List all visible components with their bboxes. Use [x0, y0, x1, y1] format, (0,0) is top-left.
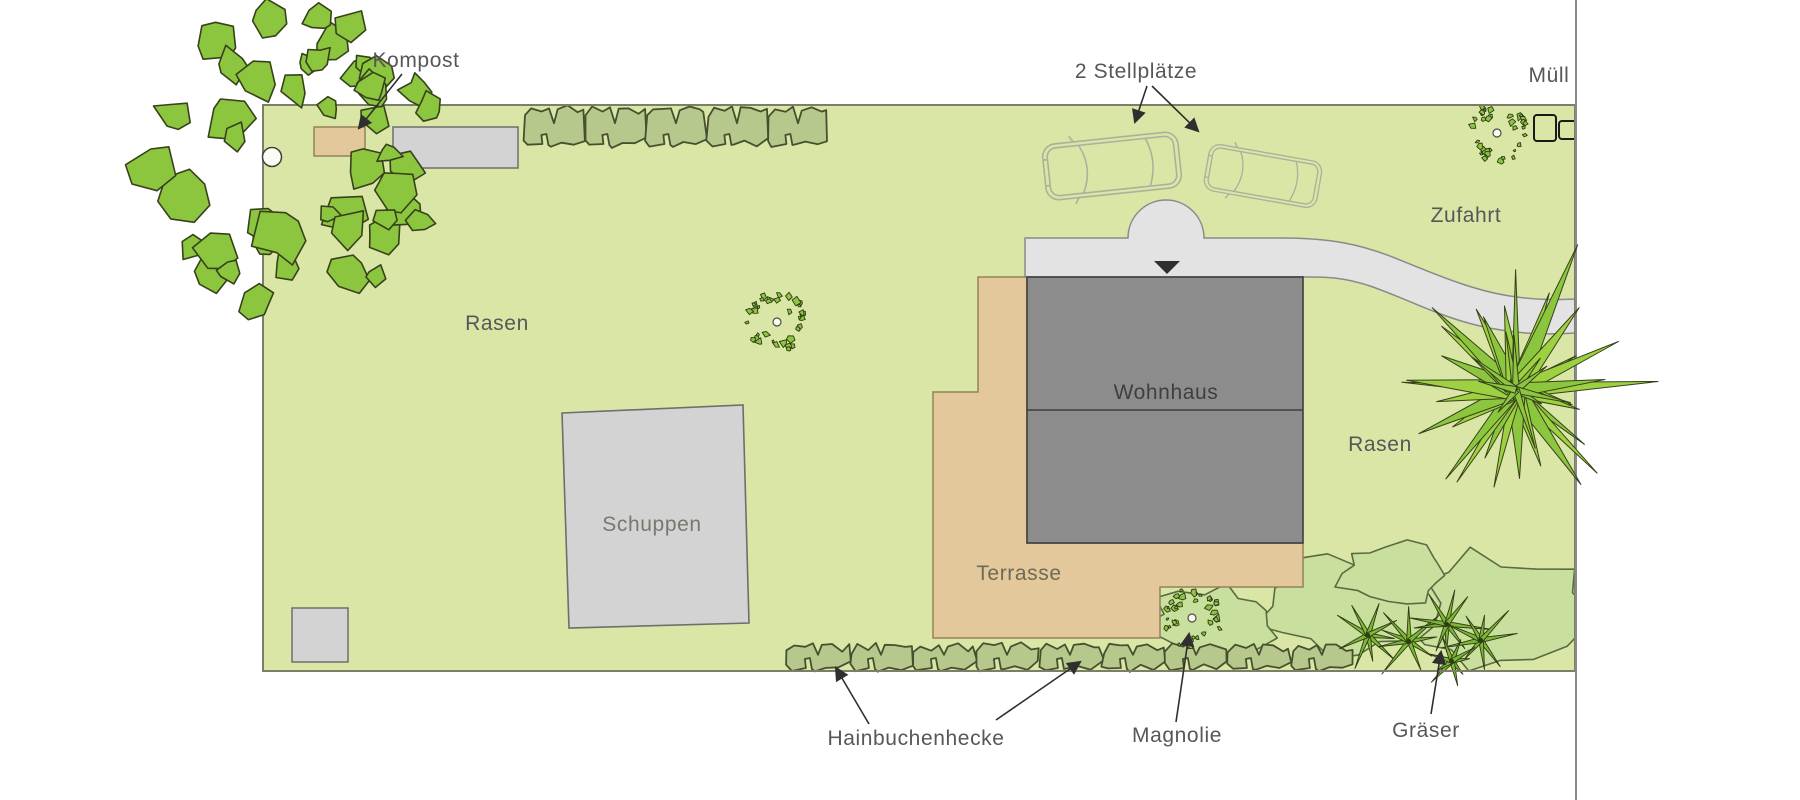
tree-trunk-marker — [263, 148, 282, 167]
label-rasen-left: Rasen — [465, 312, 529, 335]
label-zufahrt: Zufahrt — [1431, 204, 1502, 227]
label-stellplaetze: 2 Stellplätze — [1075, 60, 1197, 83]
label-wohnhaus: Wohnhaus — [1114, 381, 1219, 404]
utility-square — [292, 608, 348, 662]
label-hainbuchenhecke: Hainbuchenhecke — [827, 727, 1004, 750]
label-magnolie: Magnolie — [1132, 724, 1222, 747]
hecke-arrow-left — [836, 668, 869, 724]
label-kompost: Kompost — [372, 49, 459, 72]
label-muell: Müll — [1529, 64, 1570, 87]
label-graeser: Gräser — [1392, 719, 1460, 742]
garden-plan-drawing: Kompost 2 Stellplätze Müll Zufahrt Rasen… — [0, 0, 1800, 800]
garden-plan: Kompost 2 Stellplätze Müll Zufahrt Rasen… — [0, 0, 1800, 800]
label-rasen-right: Rasen — [1348, 433, 1412, 456]
label-schuppen: Schuppen — [602, 513, 701, 536]
label-terrasse: Terrasse — [976, 562, 1061, 585]
